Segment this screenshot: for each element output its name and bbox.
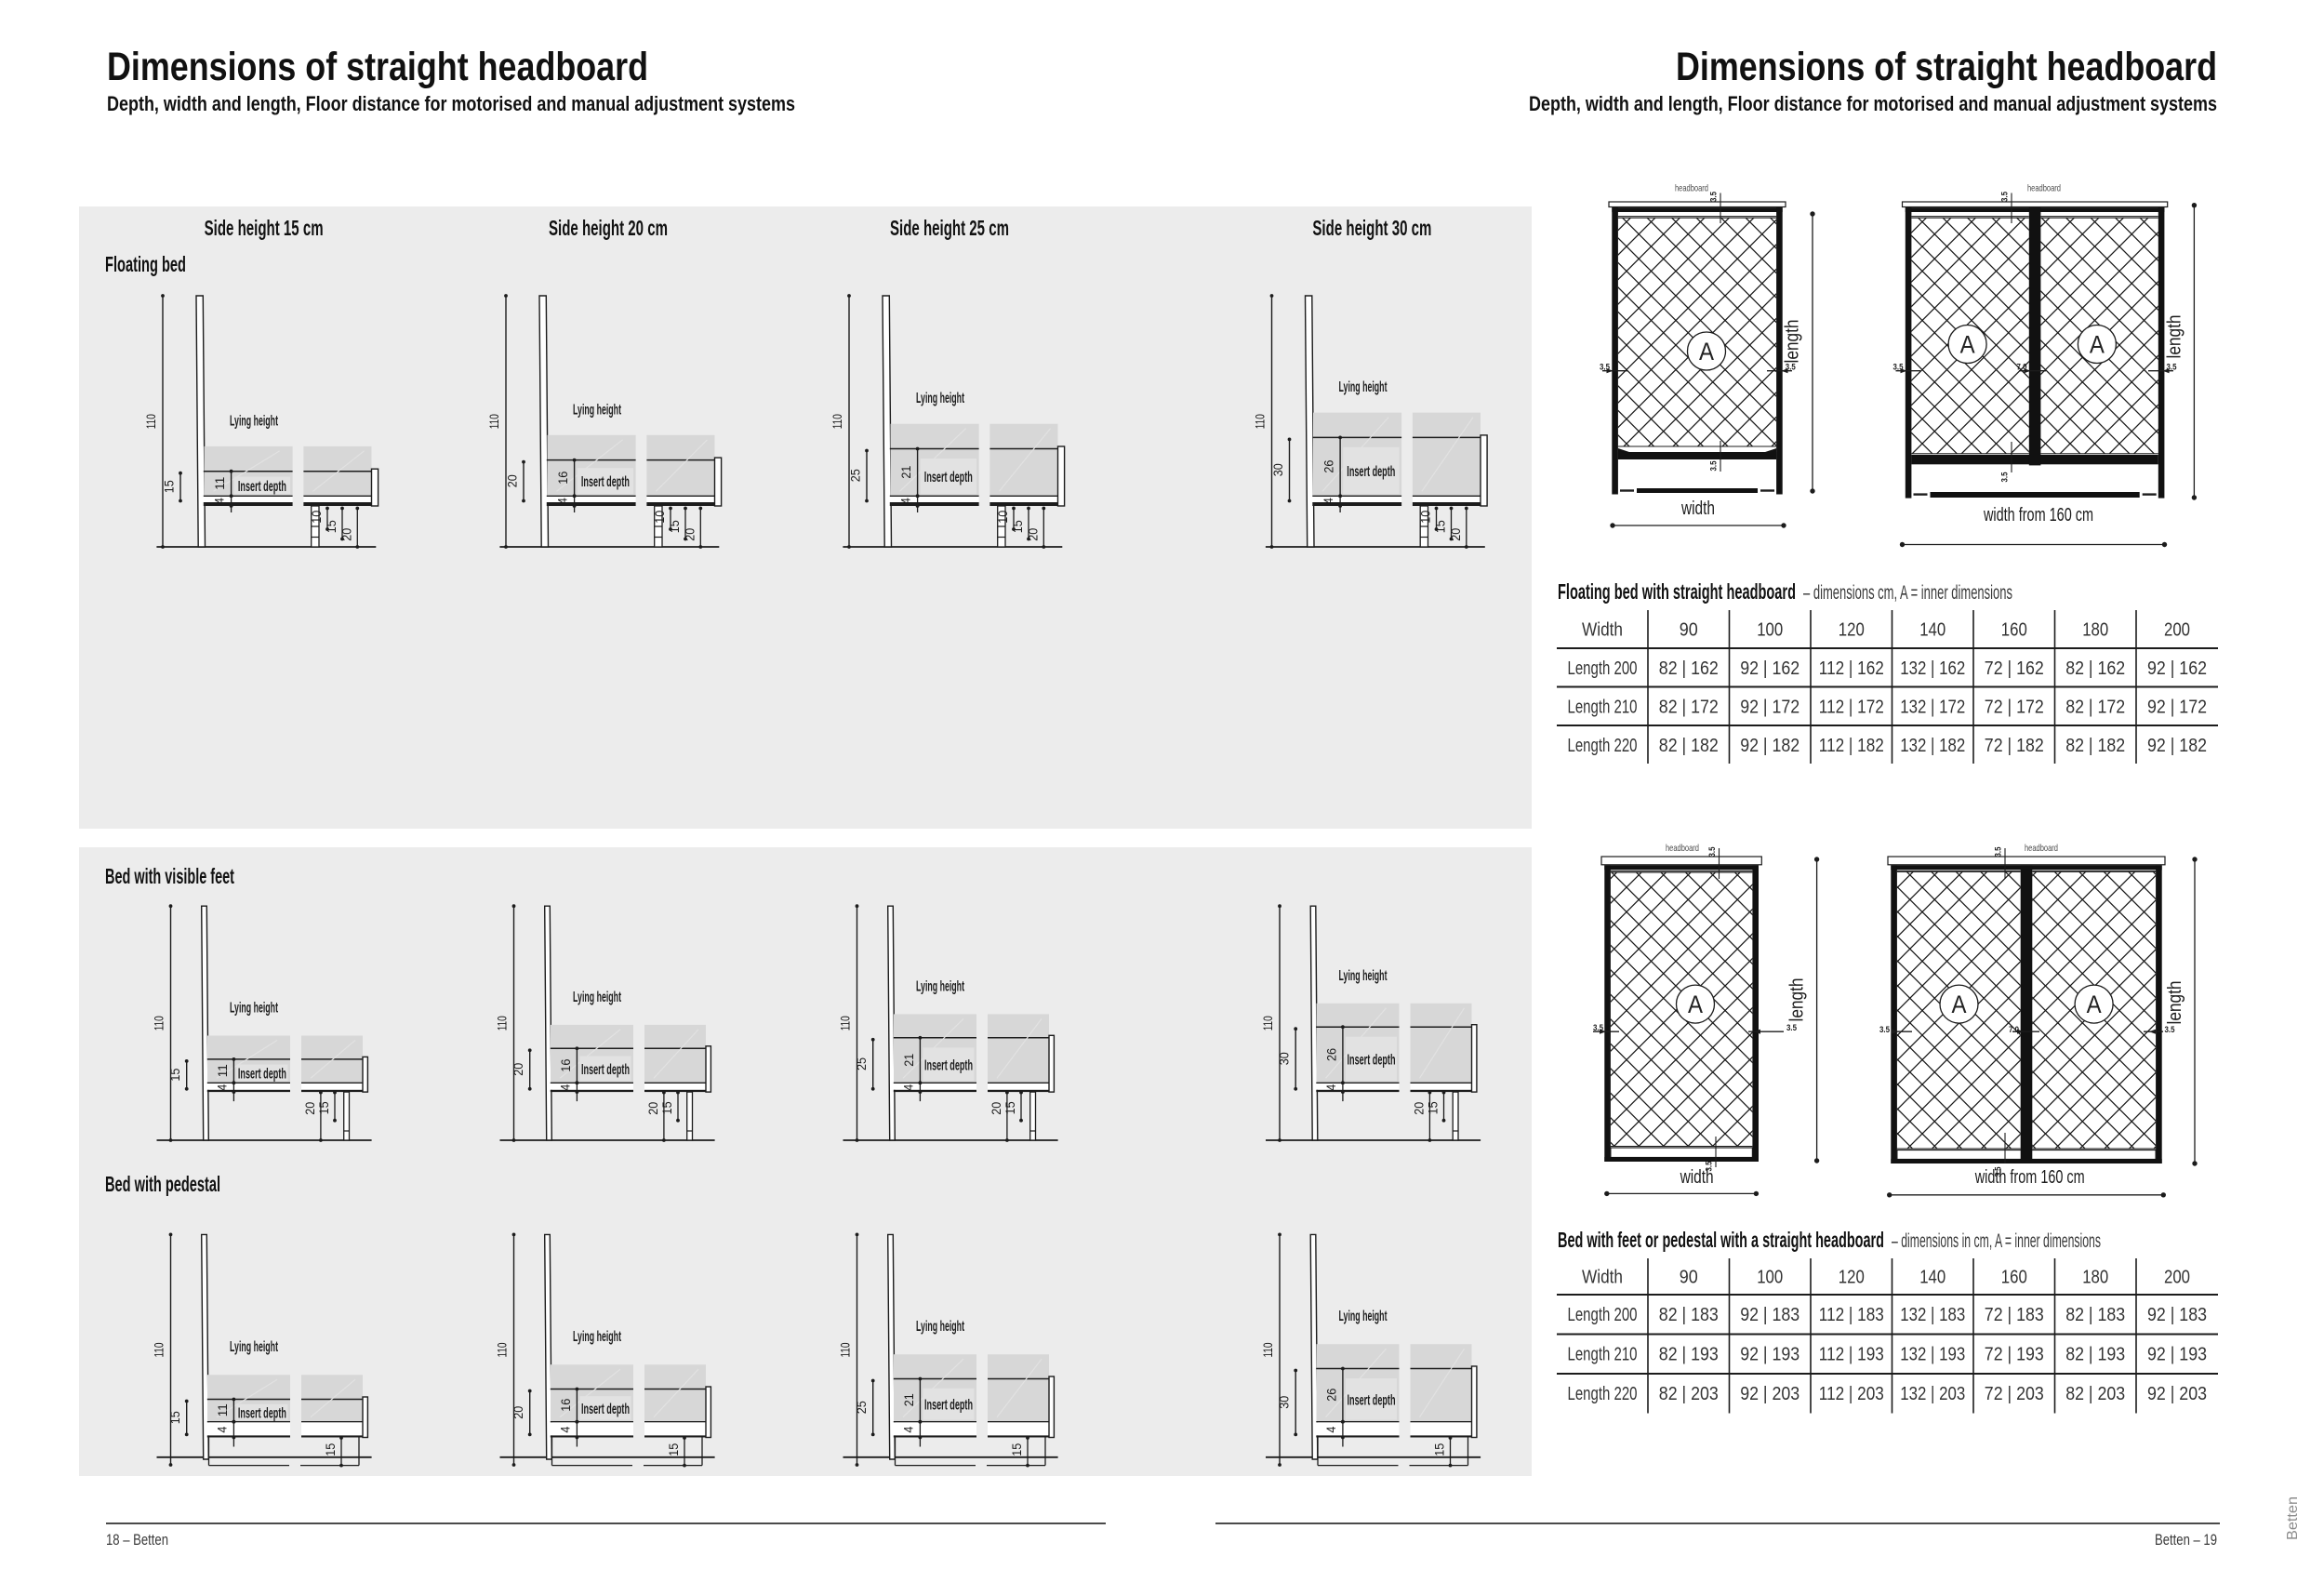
svg-text:26: 26 — [1323, 1389, 1338, 1402]
svg-text:92 | 172: 92 | 172 — [1740, 698, 1799, 718]
svg-text:90: 90 — [1680, 1268, 1698, 1288]
svg-text:Length 200: Length 200 — [1568, 658, 1638, 679]
svg-text:Bed with visible feet: Bed with visible feet — [105, 864, 234, 888]
svg-text:100: 100 — [1757, 1268, 1783, 1288]
svg-text:82 | 162: 82 | 162 — [2065, 658, 2125, 679]
svg-text:110: 110 — [838, 1342, 853, 1357]
svg-text:Lying height: Lying height — [573, 1329, 621, 1345]
svg-text:Insert depth: Insert depth — [1347, 464, 1395, 480]
svg-text:A: A — [1952, 991, 1967, 1018]
svg-text:Insert depth: Insert depth — [581, 1402, 630, 1417]
svg-text:72 | 172: 72 | 172 — [1985, 698, 2044, 718]
svg-text:4: 4 — [900, 1426, 915, 1432]
svg-text:11: 11 — [215, 1403, 230, 1416]
svg-text:30: 30 — [1270, 463, 1285, 476]
svg-text:– dimensions cm, A = inner dim: – dimensions cm, A = inner dimensions — [1803, 582, 2012, 604]
svg-text:Insert depth: Insert depth — [581, 474, 630, 490]
svg-text:26: 26 — [1321, 459, 1336, 472]
svg-text:Insert depth: Insert depth — [238, 1066, 286, 1082]
svg-text:112 | 193: 112 | 193 — [1819, 1345, 1884, 1365]
svg-text:3.5: 3.5 — [1707, 846, 1718, 858]
svg-text:132 | 203: 132 | 203 — [1900, 1384, 1965, 1404]
svg-text:length: length — [2165, 981, 2185, 1025]
svg-text:A: A — [2087, 991, 2102, 1018]
svg-text:4: 4 — [557, 1426, 572, 1432]
svg-text:A: A — [1688, 991, 1703, 1018]
svg-text:Lying height: Lying height — [916, 1319, 964, 1335]
svg-text:Floating bed: Floating bed — [105, 252, 186, 276]
svg-text:132 | 172: 132 | 172 — [1900, 698, 1965, 718]
svg-text:21: 21 — [901, 1393, 916, 1406]
svg-text:3.5: 3.5 — [1999, 191, 2010, 202]
svg-text:Insert depth: Insert depth — [924, 1398, 973, 1414]
svg-text:15: 15 — [1010, 520, 1025, 533]
svg-text:Side height 25 cm: Side height 25 cm — [890, 216, 1009, 240]
svg-text:headboard: headboard — [1675, 183, 1708, 194]
svg-text:82 | 172: 82 | 172 — [2065, 698, 2125, 718]
svg-text:92 | 193: 92 | 193 — [1740, 1345, 1799, 1365]
svg-text:92 | 203: 92 | 203 — [2147, 1384, 2207, 1404]
svg-text:Lying height: Lying height — [573, 402, 621, 418]
svg-text:3.5: 3.5 — [1993, 846, 2003, 858]
svg-text:110: 110 — [152, 1016, 166, 1030]
svg-text:10: 10 — [1418, 511, 1433, 524]
svg-text:20: 20 — [645, 1102, 660, 1115]
svg-text:82 | 193: 82 | 193 — [2065, 1345, 2125, 1365]
svg-text:112 | 203: 112 | 203 — [1819, 1384, 1884, 1404]
svg-text:18 – Betten: 18 – Betten — [106, 1532, 168, 1549]
svg-text:110: 110 — [143, 414, 158, 429]
svg-text:Lying height: Lying height — [573, 990, 621, 1005]
svg-text:92 | 193: 92 | 193 — [2147, 1345, 2207, 1365]
svg-text:92 | 182: 92 | 182 — [2147, 736, 2207, 756]
svg-text:3.5: 3.5 — [2165, 1025, 2176, 1035]
svg-text:Lying height: Lying height — [916, 978, 964, 994]
svg-text:4: 4 — [557, 1084, 572, 1091]
svg-text:10: 10 — [652, 511, 667, 524]
svg-text:132 | 183: 132 | 183 — [1900, 1305, 1965, 1325]
svg-text:Insert depth: Insert depth — [924, 1057, 973, 1073]
svg-text:30: 30 — [1277, 1396, 1292, 1409]
svg-text:15: 15 — [1432, 1443, 1447, 1456]
svg-text:110: 110 — [838, 1016, 853, 1030]
svg-text:Lying height: Lying height — [230, 413, 278, 429]
svg-text:110: 110 — [495, 1016, 510, 1030]
svg-text:15: 15 — [316, 1101, 331, 1114]
svg-text:Insert depth: Insert depth — [1348, 1392, 1396, 1408]
svg-text:A: A — [1960, 331, 1975, 359]
svg-text:Lying height: Lying height — [916, 391, 964, 406]
svg-text:160: 160 — [2001, 620, 2027, 641]
svg-text:Lying height: Lying height — [1339, 968, 1388, 984]
svg-text:20: 20 — [339, 528, 353, 541]
svg-text:82 | 162: 82 | 162 — [1659, 658, 1719, 679]
svg-text:length: length — [1787, 978, 1808, 1022]
svg-text:Betten – 19: Betten – 19 — [2155, 1532, 2217, 1549]
svg-text:15: 15 — [161, 480, 176, 493]
svg-text:20: 20 — [1025, 528, 1040, 541]
svg-text:20: 20 — [504, 474, 519, 487]
svg-text:Length 220: Length 220 — [1568, 1384, 1638, 1404]
svg-text:15: 15 — [1433, 520, 1448, 533]
svg-text:4: 4 — [214, 1426, 229, 1432]
svg-text:A: A — [2090, 331, 2105, 359]
svg-text:21: 21 — [901, 1054, 916, 1067]
svg-text:Lying height: Lying height — [230, 1001, 278, 1017]
svg-text:132 | 193: 132 | 193 — [1900, 1345, 1965, 1365]
svg-text:180: 180 — [2082, 620, 2108, 641]
svg-text:82 | 203: 82 | 203 — [1659, 1384, 1719, 1404]
svg-text:Insert depth: Insert depth — [1348, 1053, 1396, 1069]
svg-text:132 | 182: 132 | 182 — [1900, 736, 1965, 756]
svg-text:16: 16 — [558, 1399, 573, 1412]
svg-text:headboard: headboard — [2027, 183, 2061, 194]
svg-text:width: width — [1680, 1167, 1714, 1188]
svg-text:Length 220: Length 220 — [1568, 736, 1638, 756]
svg-text:Width: Width — [1582, 1268, 1623, 1288]
svg-text:140: 140 — [1919, 620, 1946, 641]
svg-text:90: 90 — [1680, 620, 1698, 641]
svg-text:Lying height: Lying height — [1339, 1309, 1388, 1324]
svg-text:headboard: headboard — [2025, 843, 2058, 854]
svg-text:3.5: 3.5 — [1708, 191, 1719, 202]
svg-text:Floating bed with straight hea: Floating bed with straight headboard — [1558, 579, 1796, 604]
svg-text:112 | 162: 112 | 162 — [1819, 658, 1884, 679]
svg-text:110: 110 — [495, 1342, 510, 1357]
svg-text:3.5: 3.5 — [1708, 460, 1719, 472]
svg-text:20: 20 — [1448, 528, 1463, 541]
svg-text:92 | 183: 92 | 183 — [2147, 1305, 2207, 1325]
svg-text:– dimensions in cm, A = inner: – dimensions in cm, A = inner dimensions — [1892, 1230, 2101, 1252]
svg-text:4: 4 — [1321, 498, 1335, 504]
svg-text:Side height 20 cm: Side height 20 cm — [549, 216, 668, 240]
svg-text:82 | 182: 82 | 182 — [1659, 736, 1719, 756]
svg-text:Depth, width and length, Floor: Depth, width and length, Floor distance … — [107, 92, 795, 115]
svg-text:15: 15 — [1426, 1101, 1441, 1114]
svg-text:132 | 162: 132 | 162 — [1900, 658, 1965, 679]
svg-text:width from 160 cm: width from 160 cm — [1974, 1167, 2085, 1188]
svg-text:Insert depth: Insert depth — [581, 1062, 630, 1078]
svg-text:4: 4 — [898, 498, 913, 504]
svg-text:15: 15 — [1009, 1443, 1024, 1456]
svg-text:10: 10 — [995, 511, 1010, 524]
svg-text:15: 15 — [167, 1411, 182, 1424]
svg-text:92 | 203: 92 | 203 — [1740, 1384, 1799, 1404]
svg-text:82 | 183: 82 | 183 — [2065, 1305, 2125, 1325]
svg-text:4: 4 — [214, 1084, 229, 1091]
svg-text:Dimensions of straight headboa: Dimensions of straight headboard — [107, 45, 648, 89]
svg-text:100: 100 — [1757, 620, 1783, 641]
svg-text:4: 4 — [212, 498, 227, 504]
svg-text:110: 110 — [1260, 1016, 1275, 1030]
svg-text:120: 120 — [1839, 620, 1865, 641]
svg-text:Dimensions of straight headboa: Dimensions of straight headboard — [1676, 45, 2217, 89]
svg-text:110: 110 — [152, 1342, 166, 1357]
svg-text:Bed with feet or pedestal with: Bed with feet or pedestal with a straigh… — [1558, 1228, 1884, 1252]
svg-text:4: 4 — [900, 1084, 915, 1091]
svg-text:15: 15 — [167, 1068, 182, 1081]
svg-text:Depth, width and length, Floor: Depth, width and length, Floor distance … — [1529, 92, 2217, 115]
svg-text:16: 16 — [555, 472, 570, 485]
svg-text:4: 4 — [1323, 1084, 1338, 1091]
svg-text:Length 210: Length 210 — [1568, 1345, 1638, 1365]
svg-text:length: length — [1783, 320, 1803, 364]
svg-text:120: 120 — [1839, 1268, 1865, 1288]
svg-text:11: 11 — [215, 1064, 230, 1077]
svg-text:15: 15 — [1003, 1101, 1017, 1114]
svg-text:110: 110 — [1253, 414, 1268, 429]
svg-text:15: 15 — [323, 1443, 338, 1456]
svg-text:headboard: headboard — [1666, 843, 1699, 854]
svg-text:72 | 162: 72 | 162 — [1985, 658, 2044, 679]
svg-text:Bed with pedestal: Bed with pedestal — [105, 1172, 220, 1196]
svg-text:Betten: Betten — [2285, 1496, 2301, 1540]
svg-text:3.5: 3.5 — [1879, 1025, 1891, 1035]
svg-text:20: 20 — [511, 1406, 525, 1419]
svg-text:Lying height: Lying height — [230, 1339, 278, 1355]
svg-text:Insert depth: Insert depth — [924, 470, 973, 485]
svg-text:4: 4 — [1323, 1426, 1338, 1432]
svg-text:200: 200 — [2164, 620, 2190, 641]
svg-text:82 | 193: 82 | 193 — [1659, 1345, 1719, 1365]
svg-text:20: 20 — [511, 1063, 525, 1076]
svg-text:92 | 162: 92 | 162 — [2147, 658, 2207, 679]
svg-text:72 | 182: 72 | 182 — [1985, 736, 2044, 756]
svg-text:72 | 183: 72 | 183 — [1985, 1305, 2044, 1325]
svg-text:Insert depth: Insert depth — [238, 1405, 286, 1421]
svg-text:Side height 30 cm: Side height 30 cm — [1312, 216, 1431, 240]
svg-text:92 | 182: 92 | 182 — [1740, 736, 1799, 756]
svg-text:16: 16 — [558, 1058, 573, 1071]
svg-text:140: 140 — [1919, 1268, 1946, 1288]
svg-text:20: 20 — [989, 1102, 1003, 1115]
svg-text:20: 20 — [302, 1102, 317, 1115]
svg-text:82 | 182: 82 | 182 — [2065, 736, 2125, 756]
svg-text:20: 20 — [1411, 1102, 1426, 1115]
svg-text:25: 25 — [854, 1057, 869, 1070]
svg-text:15: 15 — [667, 520, 682, 533]
svg-text:10: 10 — [309, 511, 324, 524]
svg-text:A: A — [1699, 338, 1714, 366]
svg-text:25: 25 — [854, 1401, 869, 1414]
svg-text:112 | 182: 112 | 182 — [1819, 736, 1884, 756]
svg-text:112 | 183: 112 | 183 — [1819, 1305, 1884, 1325]
svg-text:112 | 172: 112 | 172 — [1819, 698, 1884, 718]
svg-text:Length 210: Length 210 — [1568, 698, 1638, 718]
svg-text:25: 25 — [847, 469, 862, 482]
svg-text:72 | 203: 72 | 203 — [1985, 1384, 2044, 1404]
svg-text:Insert depth: Insert depth — [238, 479, 286, 495]
svg-text:15: 15 — [324, 520, 339, 533]
svg-text:82 | 203: 82 | 203 — [2065, 1384, 2125, 1404]
svg-text:Side height 15 cm: Side height 15 cm — [205, 216, 324, 240]
svg-text:72 | 193: 72 | 193 — [1985, 1345, 2044, 1365]
svg-text:26: 26 — [1323, 1048, 1338, 1061]
svg-text:15: 15 — [666, 1443, 681, 1456]
svg-text:82 | 183: 82 | 183 — [1659, 1305, 1719, 1325]
svg-text:Width: Width — [1582, 620, 1623, 641]
svg-text:110: 110 — [486, 414, 501, 429]
svg-text:11: 11 — [212, 477, 227, 490]
svg-text:4: 4 — [555, 498, 570, 504]
svg-text:Length 200: Length 200 — [1568, 1305, 1638, 1325]
svg-text:21: 21 — [898, 465, 913, 478]
svg-text:110: 110 — [1260, 1342, 1275, 1357]
svg-text:width from 160 cm: width from 160 cm — [1983, 505, 2093, 525]
svg-text:110: 110 — [830, 414, 844, 429]
svg-text:180: 180 — [2082, 1268, 2108, 1288]
svg-text:Lying height: Lying height — [1339, 379, 1388, 395]
svg-text:92 | 162: 92 | 162 — [1740, 658, 1799, 679]
svg-text:82 | 172: 82 | 172 — [1659, 698, 1719, 718]
svg-text:3.5: 3.5 — [1999, 472, 2010, 483]
svg-text:30: 30 — [1277, 1052, 1292, 1065]
svg-text:width: width — [1680, 499, 1715, 519]
svg-text:20: 20 — [682, 528, 697, 541]
svg-text:15: 15 — [659, 1101, 674, 1114]
svg-text:200: 200 — [2164, 1268, 2190, 1288]
svg-text:92 | 183: 92 | 183 — [1740, 1305, 1799, 1325]
svg-text:160: 160 — [2001, 1268, 2027, 1288]
svg-text:3.5: 3.5 — [1786, 1023, 1798, 1033]
svg-text:length: length — [2165, 315, 2185, 359]
svg-text:92 | 172: 92 | 172 — [2147, 698, 2207, 718]
